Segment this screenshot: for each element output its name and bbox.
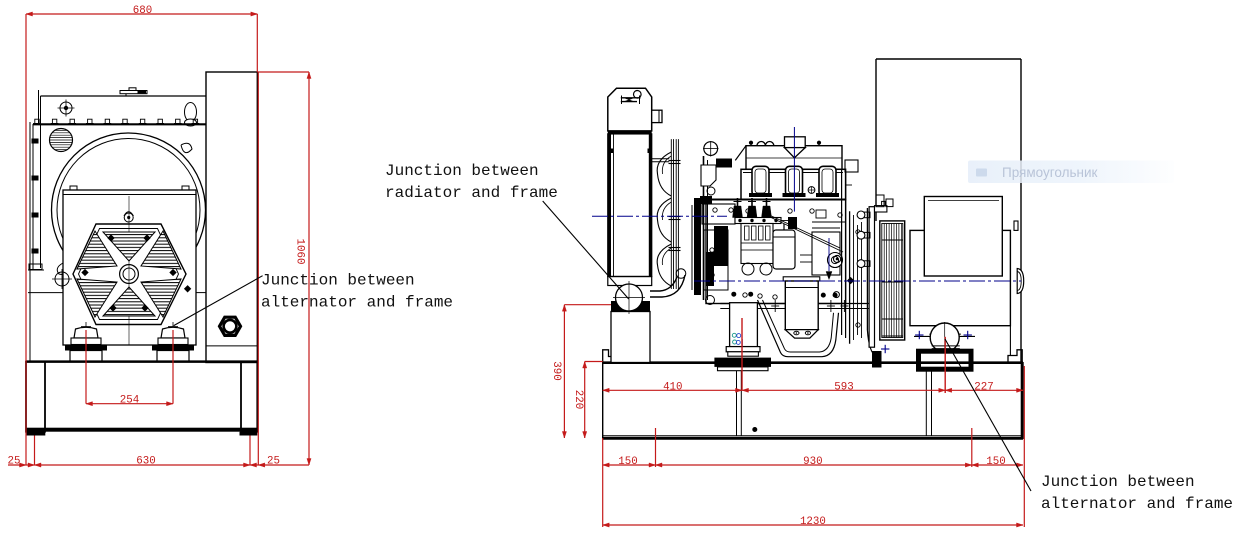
svg-text:227: 227 [974, 382, 993, 394]
svg-text:593: 593 [834, 382, 853, 394]
svg-text:1060: 1060 [294, 239, 306, 265]
svg-text:254: 254 [120, 394, 139, 406]
svg-text:150: 150 [618, 456, 637, 468]
svg-text:150: 150 [986, 456, 1005, 468]
svg-text:alternator and frame: alternator and frame [261, 294, 453, 312]
svg-text:Junction between: Junction between [261, 272, 415, 290]
svg-text:630: 630 [136, 456, 155, 468]
svg-text:radiator and frame: radiator and frame [385, 184, 558, 202]
svg-text:1230: 1230 [800, 516, 826, 528]
svg-text:25: 25 [267, 456, 280, 468]
svg-text:alternator and frame: alternator and frame [1041, 495, 1233, 513]
svg-text:680: 680 [133, 5, 152, 17]
svg-text:Прямоугольник: Прямоугольник [1002, 165, 1098, 180]
svg-text:390: 390 [550, 361, 562, 380]
svg-text:220: 220 [572, 390, 584, 409]
svg-text:930: 930 [803, 456, 822, 468]
svg-text:Junction between: Junction between [1041, 473, 1195, 491]
svg-text:410: 410 [663, 382, 682, 394]
svg-text:25: 25 [8, 456, 21, 468]
svg-text:Junction between: Junction between [385, 162, 539, 180]
